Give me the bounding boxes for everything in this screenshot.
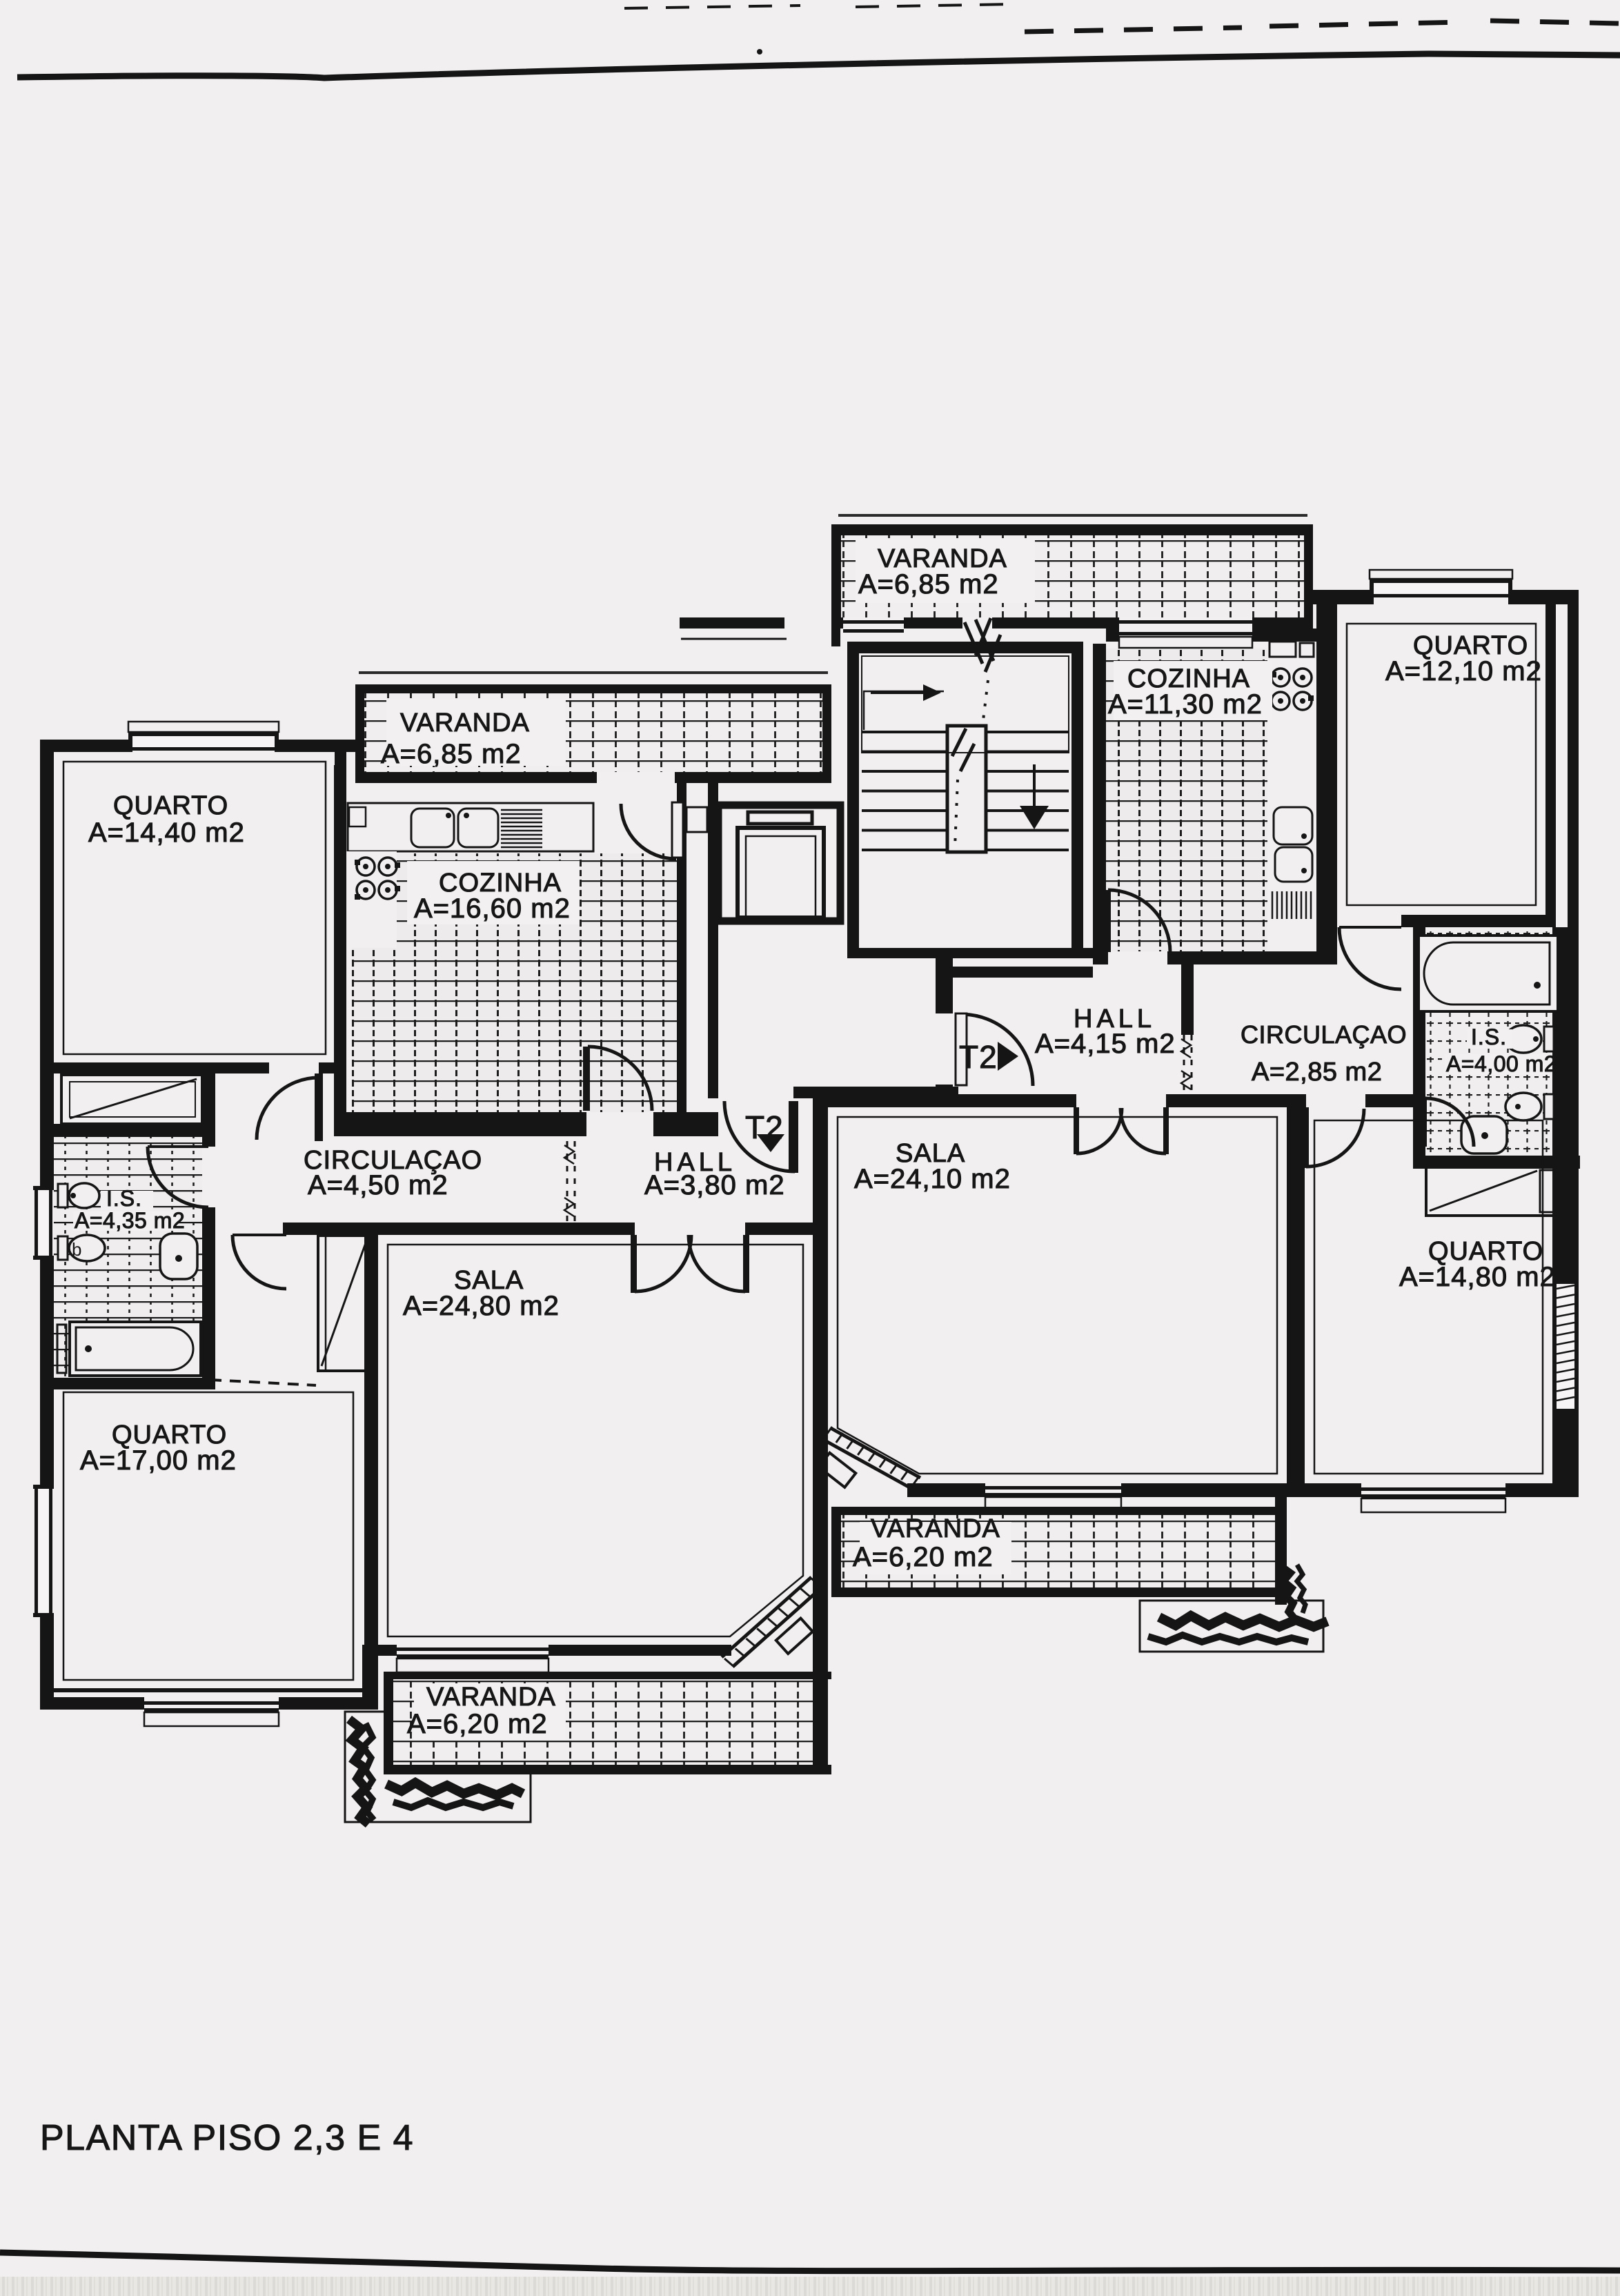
svg-text:PLANTA PISO 2,3 E 4: PLANTA PISO 2,3 E 4 bbox=[40, 2118, 414, 2158]
svg-text:QUARTO: QUARTO bbox=[113, 791, 228, 820]
svg-text:CIRCULAÇAO: CIRCULAÇAO bbox=[1241, 1020, 1407, 1049]
svg-text:A=12,10 m2: A=12,10 m2 bbox=[1385, 656, 1542, 686]
svg-text:I.S.: I.S. bbox=[106, 1186, 142, 1211]
svg-text:A=4,35 m2: A=4,35 m2 bbox=[75, 1208, 185, 1233]
svg-text:A=11,30 m2: A=11,30 m2 bbox=[1108, 689, 1263, 720]
svg-text:A=4,50 m2: A=4,50 m2 bbox=[308, 1170, 448, 1200]
svg-text:A=24,10 m2: A=24,10 m2 bbox=[854, 1164, 1011, 1194]
svg-text:VARANDA: VARANDA bbox=[426, 1683, 556, 1712]
svg-text:VARANDA: VARANDA bbox=[871, 1514, 1000, 1543]
svg-text:VARANDA: VARANDA bbox=[400, 709, 530, 738]
svg-text:A=3,80 m2: A=3,80 m2 bbox=[644, 1170, 785, 1200]
svg-text:A=16,60 m2: A=16,60 m2 bbox=[414, 893, 571, 924]
svg-text:A=24,80 m2: A=24,80 m2 bbox=[403, 1291, 560, 1321]
svg-text:A=17,00 m2: A=17,00 m2 bbox=[80, 1445, 237, 1476]
svg-text:A=2,85 m2: A=2,85 m2 bbox=[1252, 1058, 1382, 1087]
svg-text:T2: T2 bbox=[959, 1039, 998, 1075]
svg-text:A=4,15 m2: A=4,15 m2 bbox=[1035, 1029, 1176, 1059]
svg-text:A=6,85 m2: A=6,85 m2 bbox=[858, 569, 999, 600]
svg-text:A=14,80 m2: A=14,80 m2 bbox=[1399, 1262, 1556, 1292]
svg-text:b: b bbox=[72, 1239, 81, 1260]
svg-text:A=6,20 m2: A=6,20 m2 bbox=[853, 1542, 994, 1572]
svg-text:I.S.: I.S. bbox=[1471, 1025, 1507, 1049]
svg-text:A=4,00 m2: A=4,00 m2 bbox=[1446, 1051, 1557, 1076]
svg-text:A=6,20 m2: A=6,20 m2 bbox=[407, 1709, 548, 1739]
svg-text:A=6,85 m2: A=6,85 m2 bbox=[381, 739, 522, 769]
svg-text:A=14,40 m2: A=14,40 m2 bbox=[88, 818, 245, 848]
